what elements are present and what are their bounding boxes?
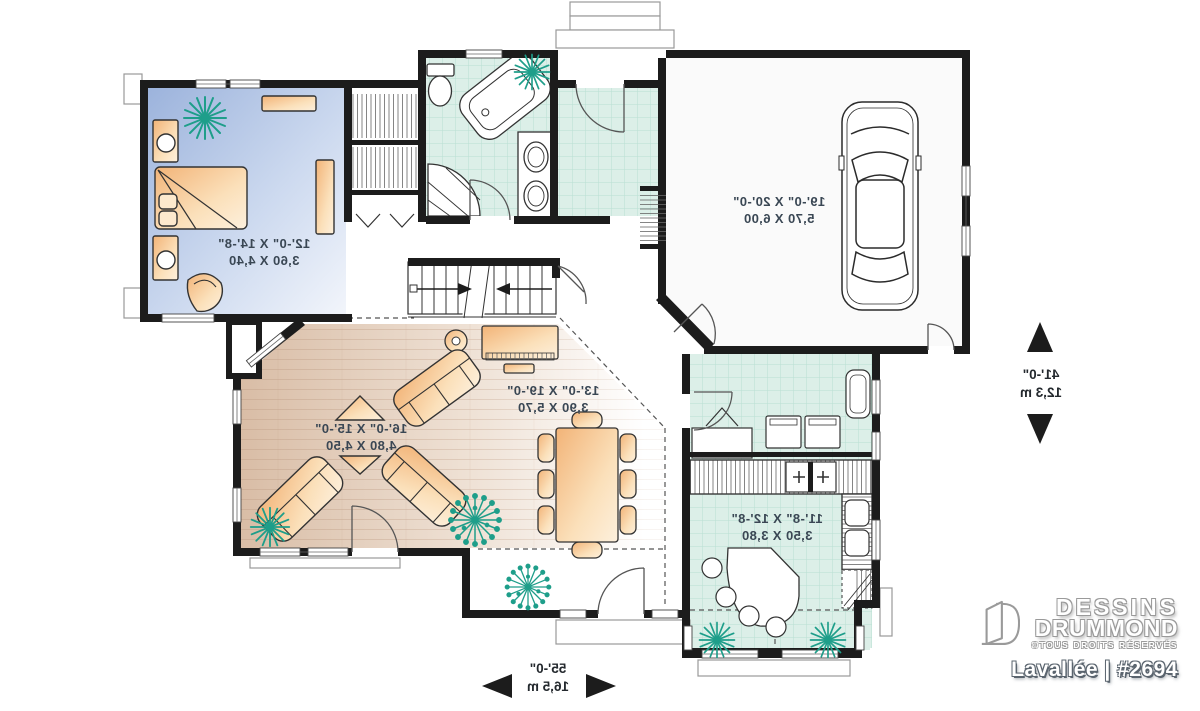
overall-width-label: 55'-0" 16,5 m <box>527 660 569 696</box>
bifold-door <box>356 214 414 227</box>
width-arrow-right-icon <box>586 674 616 698</box>
room-label-garage: 19'-0" X 20'-0" 5,70 X 6,00 <box>733 194 825 228</box>
room-dim-imperial: 13'-0" X 19'-0" <box>507 383 599 400</box>
room-dim-metric: 3,50 X 3,80 <box>731 528 823 545</box>
armoire <box>316 160 334 234</box>
dining-chair <box>572 542 602 558</box>
dining-chair <box>538 434 554 462</box>
company-logo-text: DESSINS DRUMMOND <box>1035 597 1178 639</box>
dining-chair <box>538 470 554 498</box>
depth-metric: 12,3 m <box>1020 384 1062 402</box>
back-porch-step <box>570 2 660 16</box>
bed-pillow <box>159 211 177 226</box>
plant-icon <box>449 494 501 546</box>
room-label-kitchen: 11'-8" X 12'-8" 3,50 X 3,80 <box>731 511 823 545</box>
depth-arrow-down-icon <box>1027 414 1053 444</box>
plant-icon <box>811 623 846 658</box>
dining-chair <box>620 506 636 534</box>
room-label-bedroom: 12'-0" X 14'-8" 3,60 X 4,40 <box>218 236 310 270</box>
dresser <box>262 96 316 111</box>
back-porch-step <box>570 16 660 30</box>
plant-icon <box>251 508 290 547</box>
plant-icon <box>184 97 226 139</box>
front-entry-porch <box>556 620 690 644</box>
kitchen-sink <box>845 530 869 556</box>
room-dim-imperial: 19'-0" X 20'-0" <box>733 194 825 211</box>
open-door-d-icon <box>978 597 1020 647</box>
piano-bench <box>504 364 534 373</box>
dining-table <box>556 428 618 542</box>
front-porch-edge <box>250 558 400 568</box>
brand-block: DESSINS DRUMMOND ©TOUS DROITS RÉSERVÉS L… <box>978 597 1178 682</box>
room-dim-metric: 3,90 X 5,70 <box>507 400 599 417</box>
dining-chair <box>538 506 554 534</box>
corner-sill <box>124 74 142 104</box>
width-imperial: 55'-0" <box>527 660 569 678</box>
plan-model-number: Lavallée | #2694 <box>978 658 1178 682</box>
dining-chair <box>620 434 636 462</box>
staircase <box>408 260 556 318</box>
plant-icon <box>515 55 550 90</box>
lamp-icon <box>157 134 175 152</box>
nook-porch-edge <box>698 660 850 676</box>
room-dim-imperial: 12'-0" X 14'-8" <box>218 236 310 253</box>
back-porch-landing <box>556 30 674 48</box>
logo-line2: DRUMMOND <box>1035 618 1178 639</box>
lamp-icon <box>157 251 175 269</box>
piano-keys <box>486 353 554 360</box>
kitchen-sink <box>845 500 869 526</box>
front-door <box>598 568 644 614</box>
depth-imperial: 41'-0" <box>1020 366 1062 384</box>
toilet-bowl <box>429 76 452 106</box>
room-dim-metric: 5,70 X 6,00 <box>733 211 825 228</box>
plant-icon <box>505 564 550 609</box>
room-dim-metric: 3,60 X 4,40 <box>218 253 310 270</box>
basement-door <box>558 266 586 304</box>
width-arrow-left-icon <box>482 674 512 698</box>
room-dim-metric: 4,80 X 4,50 <box>315 438 407 455</box>
room-label-dining: 13'-0" X 19'-0" 3,90 X 5,70 <box>507 383 599 417</box>
width-metric: 16,5 m <box>527 678 569 696</box>
toilet-tank <box>427 64 454 76</box>
overall-depth-label: 41'-0" 12,3 m <box>1020 366 1062 402</box>
room-label-living: 16'-0" X 15'-0" 4,80 X 4,50 <box>315 421 407 455</box>
floor-plan-page: 12'-0" X 14'-8" 3,60 X 4,40 19'-0" X 20'… <box>0 0 1200 711</box>
plant-icon <box>700 623 735 658</box>
dining-chair <box>620 470 636 498</box>
wall-chase <box>229 322 259 376</box>
room-dim-imperial: 16'-0" X 15'-0" <box>315 421 407 438</box>
side-step <box>880 588 892 636</box>
car-icon <box>839 102 921 310</box>
corner-sill <box>124 288 142 318</box>
depth-arrow-up-icon <box>1027 322 1053 352</box>
room-dim-imperial: 11'-8" X 12'-8" <box>731 511 823 528</box>
bed-pillow <box>159 194 177 209</box>
